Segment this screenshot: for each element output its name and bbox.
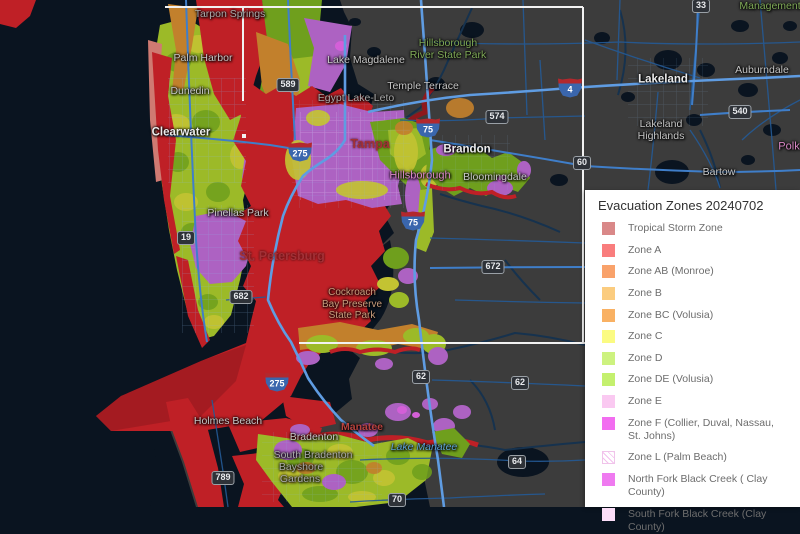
route-shield-682: 682 <box>229 290 252 304</box>
route-shield-574: 574 <box>485 110 508 124</box>
legend-item-zone-f: Zone F (Collier, Duval, Nassau, St. John… <box>598 417 800 443</box>
route-shield-19: 19 <box>177 231 195 245</box>
swatch-tropical-storm <box>602 222 615 235</box>
swatch-zone-ab <box>602 265 615 278</box>
legend-panel: Evacuation Zones 20240702 Tropical Storm… <box>585 190 800 507</box>
legend-item-north-fork: North Fork Black Creek ( Clay County) <box>598 473 800 499</box>
swatch-south-fork <box>602 508 615 521</box>
swatch-zone-b <box>602 287 615 300</box>
route-shield-62-west: 62 <box>412 370 430 384</box>
swatch-north-fork <box>602 473 615 486</box>
swatch-zone-l <box>602 451 615 464</box>
legend-item-tropical-storm: Tropical Storm Zone <box>598 222 800 235</box>
swatch-zone-bc <box>602 309 615 322</box>
legend-item-zone-c: Zone C <box>598 330 800 343</box>
legend-title: Evacuation Zones 20240702 <box>598 198 800 213</box>
route-shield-672: 672 <box>481 260 504 274</box>
swatch-zone-c <box>602 330 615 343</box>
swatch-zone-e <box>602 395 615 408</box>
legend-item-zone-ab: Zone AB (Monroe) <box>598 265 800 278</box>
legend-item-zone-de: Zone DE (Volusia) <box>598 373 800 386</box>
swatch-zone-a <box>602 244 615 257</box>
swatch-zone-de <box>602 373 615 386</box>
route-shield-589: 589 <box>276 78 299 92</box>
route-shield-789: 789 <box>211 471 234 485</box>
legend-item-zone-bc: Zone BC (Volusia) <box>598 309 800 322</box>
route-shield-60: 60 <box>573 156 591 170</box>
legend-item-zone-a: Zone A <box>598 244 800 257</box>
legend-item-zone-b: Zone B <box>598 287 800 300</box>
route-shield-70: 70 <box>388 493 406 507</box>
legend-item-south-fork: South Fork Black Creek (Clay County) <box>598 508 800 534</box>
route-shield-64: 64 <box>508 455 526 469</box>
route-shield-33: 33 <box>692 0 710 13</box>
map-app: { "legend": { "title": "Evacuation Zones… <box>0 0 800 507</box>
legend-item-zone-l: Zone L (Palm Beach) <box>598 451 800 464</box>
swatch-zone-d <box>602 352 615 365</box>
legend-item-zone-d: Zone D <box>598 352 800 365</box>
swatch-zone-f <box>602 417 615 430</box>
legend-item-zone-e: Zone E <box>598 395 800 408</box>
route-shield-540: 540 <box>728 105 751 119</box>
route-shield-62-east: 62 <box>511 376 529 390</box>
